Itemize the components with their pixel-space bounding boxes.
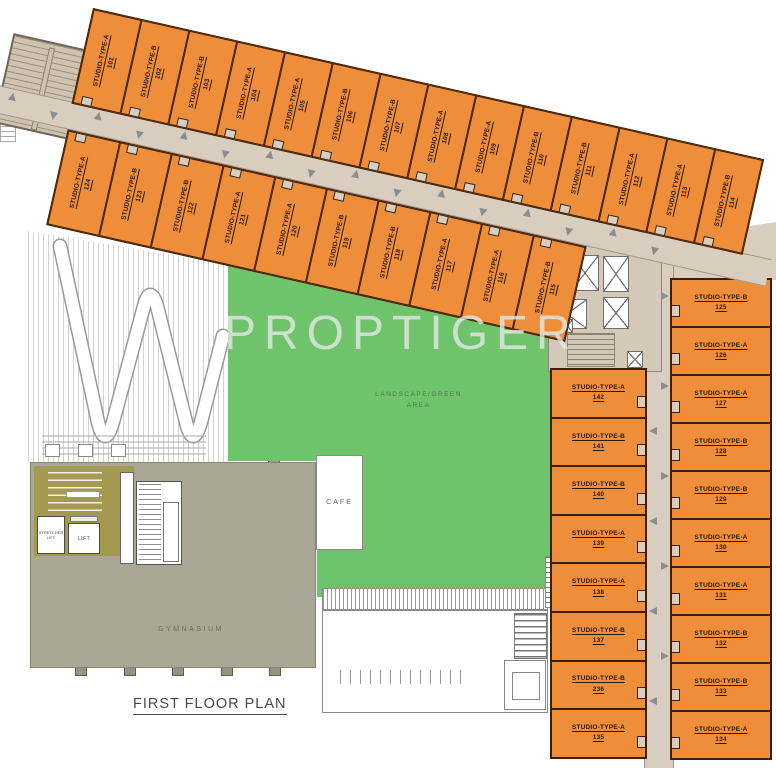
studio-unit: STUDIO-TYPE-A 126 [671,327,771,375]
green-area-label: LANDSCAPE/GREEN AREA [375,389,462,411]
direction-arrow [564,227,574,237]
direction-arrow [649,247,659,257]
unit-type-label: STUDIO-TYPE-A [572,383,625,393]
direction-arrow [661,472,669,480]
lift: LIFT [68,523,100,554]
direction-arrow [8,92,18,102]
unit-type-label: STUDIO-TYPE-A [572,529,625,539]
shaft-box [627,351,643,368]
pavilion [504,660,546,710]
unit-type-label: STUDIO-TYPE-B [694,437,747,447]
duct-shaft [120,472,134,564]
direction-arrow [220,150,230,160]
unit-column-outer: STUDIO-TYPE-B 125 STUDIO-TYPE-A 126 STUD… [670,278,772,760]
unit-number-label: 125 [694,303,747,313]
cafe-area: CAFE [316,455,363,550]
unit-number-label: 142 [572,393,625,403]
studio-unit: STUDIO-TYPE-B 137 [551,612,646,661]
direction-arrow [478,208,488,218]
unit-number-label: 141 [572,442,625,452]
unit-type-label: STUDIO-TYPE-B [572,674,625,684]
direction-arrow [94,111,104,121]
stretcher-lift: STRETCHER LIFT [37,516,65,554]
studio-unit: STUDIO-TYPE-B 128 [671,423,771,471]
planter-box [45,444,60,457]
studio-unit: STUDIO-TYPE-A 135 [551,709,646,758]
direction-arrow [437,188,447,198]
direction-arrow [649,427,657,435]
direction-arrow [49,111,59,121]
direction-arrow [179,130,189,140]
unit-number-label: 139 [572,539,625,549]
studio-unit: STUDIO-TYPE-A 142 [551,369,646,418]
unit-type-label: STUDIO-TYPE-A [572,723,625,733]
unit-type-label: STUDIO-TYPE-B [572,432,625,442]
unit-type-label: STUDIO-TYPE-B [694,485,747,495]
unit-number-label: 129 [694,495,747,505]
studio-unit: STUDIO-TYPE-A 131 [671,567,771,615]
terrace-ticks [340,670,470,684]
terrace-steps [514,613,547,659]
unit-type-label: STUDIO-TYPE-B [694,293,747,303]
direction-arrow [649,517,657,525]
studio-unit: STUDIO-TYPE-A 130 [671,519,771,567]
unit-column-inner: STUDIO-TYPE-A 142 STUDIO-TYPE-B 141 STUD… [550,368,647,759]
unit-number-label: 126 [694,351,747,361]
direction-arrow [265,150,275,160]
unit-number-label: 130 [694,543,747,553]
unit-number-label: 140 [572,490,625,500]
studio-unit: STUDIO-TYPE-B 129 [671,471,771,519]
cafe-label: CAFE [326,499,353,506]
unit-type-label: STUDIO-TYPE-B [694,629,747,639]
stair-well [163,502,179,562]
planter-box [111,444,126,457]
unit-number-label: 135 [572,733,625,743]
unit-type-label: STUDIO-TYPE-A [694,725,747,735]
studio-unit: STUDIO-TYPE-B 133 [671,663,771,711]
direction-arrow [661,562,669,570]
studio-unit: STUDIO-TYPE-A 127 [671,375,771,423]
direction-arrow [351,169,361,179]
service-core: STRETCHER LIFT LIFT [34,466,134,556]
studio-unit: STUDIO-TYPE-B 236 [551,661,646,710]
direction-arrow [306,169,316,179]
unit-type-label: STUDIO-TYPE-B [694,677,747,687]
unit-type-label: STUDIO-TYPE-A [694,341,747,351]
pavilion-inner [512,672,540,700]
studio-unit: STUDIO-TYPE-B 125 [671,279,771,327]
plan-title: FIRST FLOOR PLAN [133,696,287,715]
watermark: PROPTIGER [224,306,579,361]
unit-number-label: 133 [694,687,747,697]
unit-number-label: 128 [694,447,747,457]
unit-number-label: 127 [694,399,747,409]
terrace-hatching [322,588,548,610]
unit-number-label: 236 [572,685,625,695]
studio-unit: STUDIO-TYPE-B 141 [551,418,646,467]
unit-number-label: 138 [572,588,625,598]
unit-number-label: 137 [572,636,625,646]
studio-unit: STUDIO-TYPE-B 132 [671,615,771,663]
lift-shaft [603,256,629,292]
unit-type-label: STUDIO-TYPE-A [572,577,625,587]
studio-unit: STUDIO-TYPE-B 140 [551,466,646,515]
lift-door [70,516,98,522]
floor-plan: LANDSCAPE/GREEN AREA GYMNASIUM STRETCHER… [0,0,776,768]
direction-arrow [523,208,533,218]
unit-type-label: STUDIO-TYPE-A [694,389,747,399]
direction-arrow [609,227,619,237]
unit-type-label: STUDIO-TYPE-A [694,581,747,591]
stair-flight [139,484,161,562]
direction-arrow [134,130,144,140]
lift-shaft [603,297,629,329]
direction-arrow [392,189,402,199]
stairwell [136,481,182,565]
direction-arrow [661,652,669,660]
direction-arrow [661,382,669,390]
direction-arrow [661,292,669,300]
direction-arrow [649,607,657,615]
studio-unit: STUDIO-TYPE-A 134 [671,711,771,759]
unit-type-label: STUDIO-TYPE-B [572,626,625,636]
unit-number-label: 131 [694,591,747,601]
stair-landing [66,491,100,498]
unit-number-label: 134 [694,735,747,745]
studio-unit: STUDIO-TYPE-A 138 [551,563,646,612]
unit-number-label: 132 [694,639,747,649]
studio-unit: STUDIO-TYPE-A 139 [551,515,646,564]
direction-arrow [649,697,657,705]
unit-type-label: STUDIO-TYPE-B [572,480,625,490]
unit-type-label: STUDIO-TYPE-A [694,533,747,543]
gymnasium-label: GYMNASIUM [121,626,261,633]
planter-box [78,444,93,457]
gymnasium-area: GYMNASIUM STRETCHER LIFT LIFT [30,462,316,668]
